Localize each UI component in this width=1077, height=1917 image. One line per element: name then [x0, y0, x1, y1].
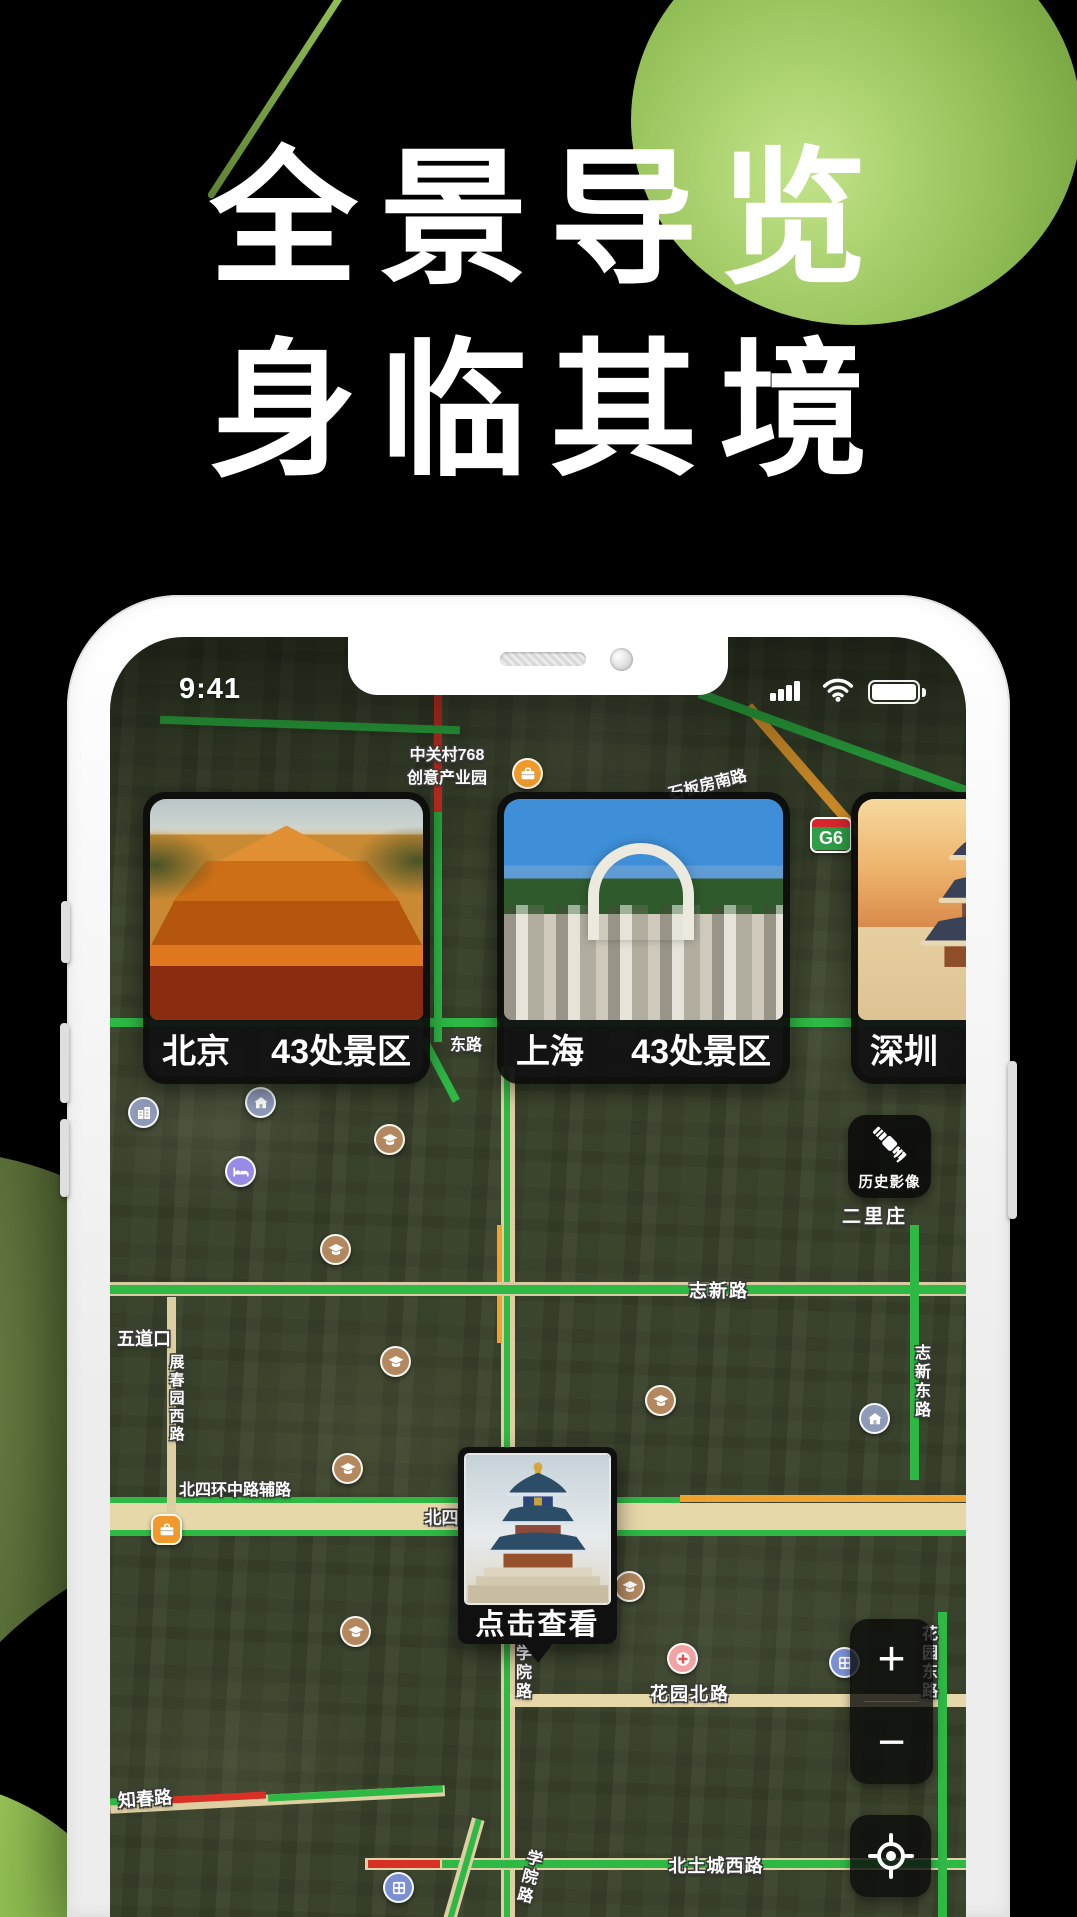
status-time: 9:41	[150, 673, 270, 706]
temple-photo	[466, 1455, 609, 1603]
zoom-in-button[interactable]: +	[850, 1619, 933, 1701]
temple-poi-marker[interactable]: 点击查看	[458, 1447, 617, 1644]
road-label-donglu: 东路	[450, 1031, 482, 1055]
crosshair-icon	[867, 1832, 915, 1880]
status-bar: 9:41	[110, 637, 966, 717]
history-imagery-label: 历史影像	[859, 1171, 921, 1192]
road-label-zhixinlu: 志新路	[689, 1277, 749, 1303]
hero-title-line1: 全景导览	[0, 146, 1077, 294]
road-label-wudaokou: 五道口	[117, 1325, 171, 1351]
road-zhixin-traffic	[110, 1285, 966, 1294]
road-label-huayuan-beilu: 花园北路	[650, 1680, 730, 1706]
hero-title-line2: 身临其境	[0, 338, 1077, 486]
card-count-label: 43处景区	[631, 1024, 771, 1073]
volume-up-button	[60, 1023, 69, 1103]
shanghai-photo	[504, 799, 783, 1020]
poi-hotel-bed-icon[interactable]	[225, 1156, 256, 1187]
marker-caption: 点击查看	[466, 1603, 609, 1641]
road-label-zgc-park-line2: 创意产业园	[407, 764, 487, 788]
mute-switch	[61, 901, 70, 963]
g6-number: G6	[812, 827, 850, 850]
card-city-label: 北京	[162, 1024, 230, 1073]
volume-down-button	[60, 1119, 69, 1197]
poi-house-icon[interactable]	[859, 1403, 890, 1434]
zoom-out-button[interactable]: −	[850, 1702, 933, 1784]
battery-icon	[868, 680, 920, 704]
attraction-card-beijing[interactable]: 北京 43处景区	[143, 792, 430, 1084]
g6-highway-badge: G6	[810, 817, 852, 853]
poi-school-cap-icon[interactable]	[374, 1124, 405, 1155]
poi-school-cap-icon[interactable]	[645, 1385, 676, 1416]
history-imagery-button[interactable]: 历史影像	[848, 1115, 931, 1198]
phone-screen: 中关村768创意产业园石板房南路东路二里庄志新路志新东路五道口展春园西路北四环中…	[110, 637, 966, 1917]
locate-button[interactable]	[850, 1815, 931, 1897]
satellite-icon	[867, 1122, 913, 1168]
poi-school-cap-icon[interactable]	[320, 1234, 351, 1265]
beijing-photo	[150, 799, 423, 1020]
road-beisihuan-slow	[680, 1495, 966, 1502]
poi-residential-grid-icon[interactable]	[383, 1872, 414, 1903]
road-vertical-right-bottom	[938, 1612, 947, 1917]
road-label-beitucheng-xilu: 北土城西路	[669, 1852, 764, 1878]
road-label-zhixin-donglu: 志新东路	[908, 1344, 932, 1420]
poi-hospital-cross-icon[interactable]	[667, 1643, 698, 1674]
poi-school-cap-icon[interactable]	[340, 1616, 371, 1647]
poi-workplace-square-icon[interactable]	[151, 1514, 182, 1545]
poi-school-cap-icon[interactable]	[614, 1571, 645, 1602]
card-count-label: 43处景区	[271, 1024, 411, 1073]
power-button	[1008, 1061, 1017, 1219]
road-label-zhichunlu: 知春路	[117, 1783, 173, 1813]
poi-house-icon[interactable]	[245, 1087, 276, 1118]
g6-red-band	[812, 819, 850, 827]
wifi-icon	[822, 678, 854, 702]
card-city-label: 上海	[516, 1024, 584, 1073]
road-label-zgc-park-line1: 中关村768	[410, 741, 485, 765]
poi-office-building-icon[interactable]	[128, 1097, 159, 1128]
road-label-erlizhuang: 二里庄	[842, 1202, 908, 1229]
card-city-label: 深圳	[870, 1024, 938, 1073]
road-beitucheng-jam	[368, 1860, 440, 1868]
attraction-card-shanghai[interactable]: 上海 43处景区	[497, 792, 790, 1084]
attraction-card-shenzhen[interactable]: 深圳	[851, 792, 966, 1084]
poi-school-cap-icon[interactable]	[380, 1346, 411, 1377]
zoom-control-panel: + −	[850, 1619, 933, 1784]
poi-workplace-icon[interactable]	[512, 758, 543, 789]
road-label-beisihuan-zhonglu-fulu: 北四环中路辅路	[179, 1476, 291, 1500]
phone-mockup: 中关村768创意产业园石板房南路东路二里庄志新路志新东路五道口展春园西路北四环中…	[67, 595, 1010, 1917]
shenzhen-photo	[858, 799, 966, 1020]
cellular-signal-icon	[770, 679, 804, 701]
poi-school-cap-icon[interactable]	[332, 1453, 363, 1484]
road-label-zhanchunyuan-xilu: 展春园西路	[166, 1354, 187, 1444]
